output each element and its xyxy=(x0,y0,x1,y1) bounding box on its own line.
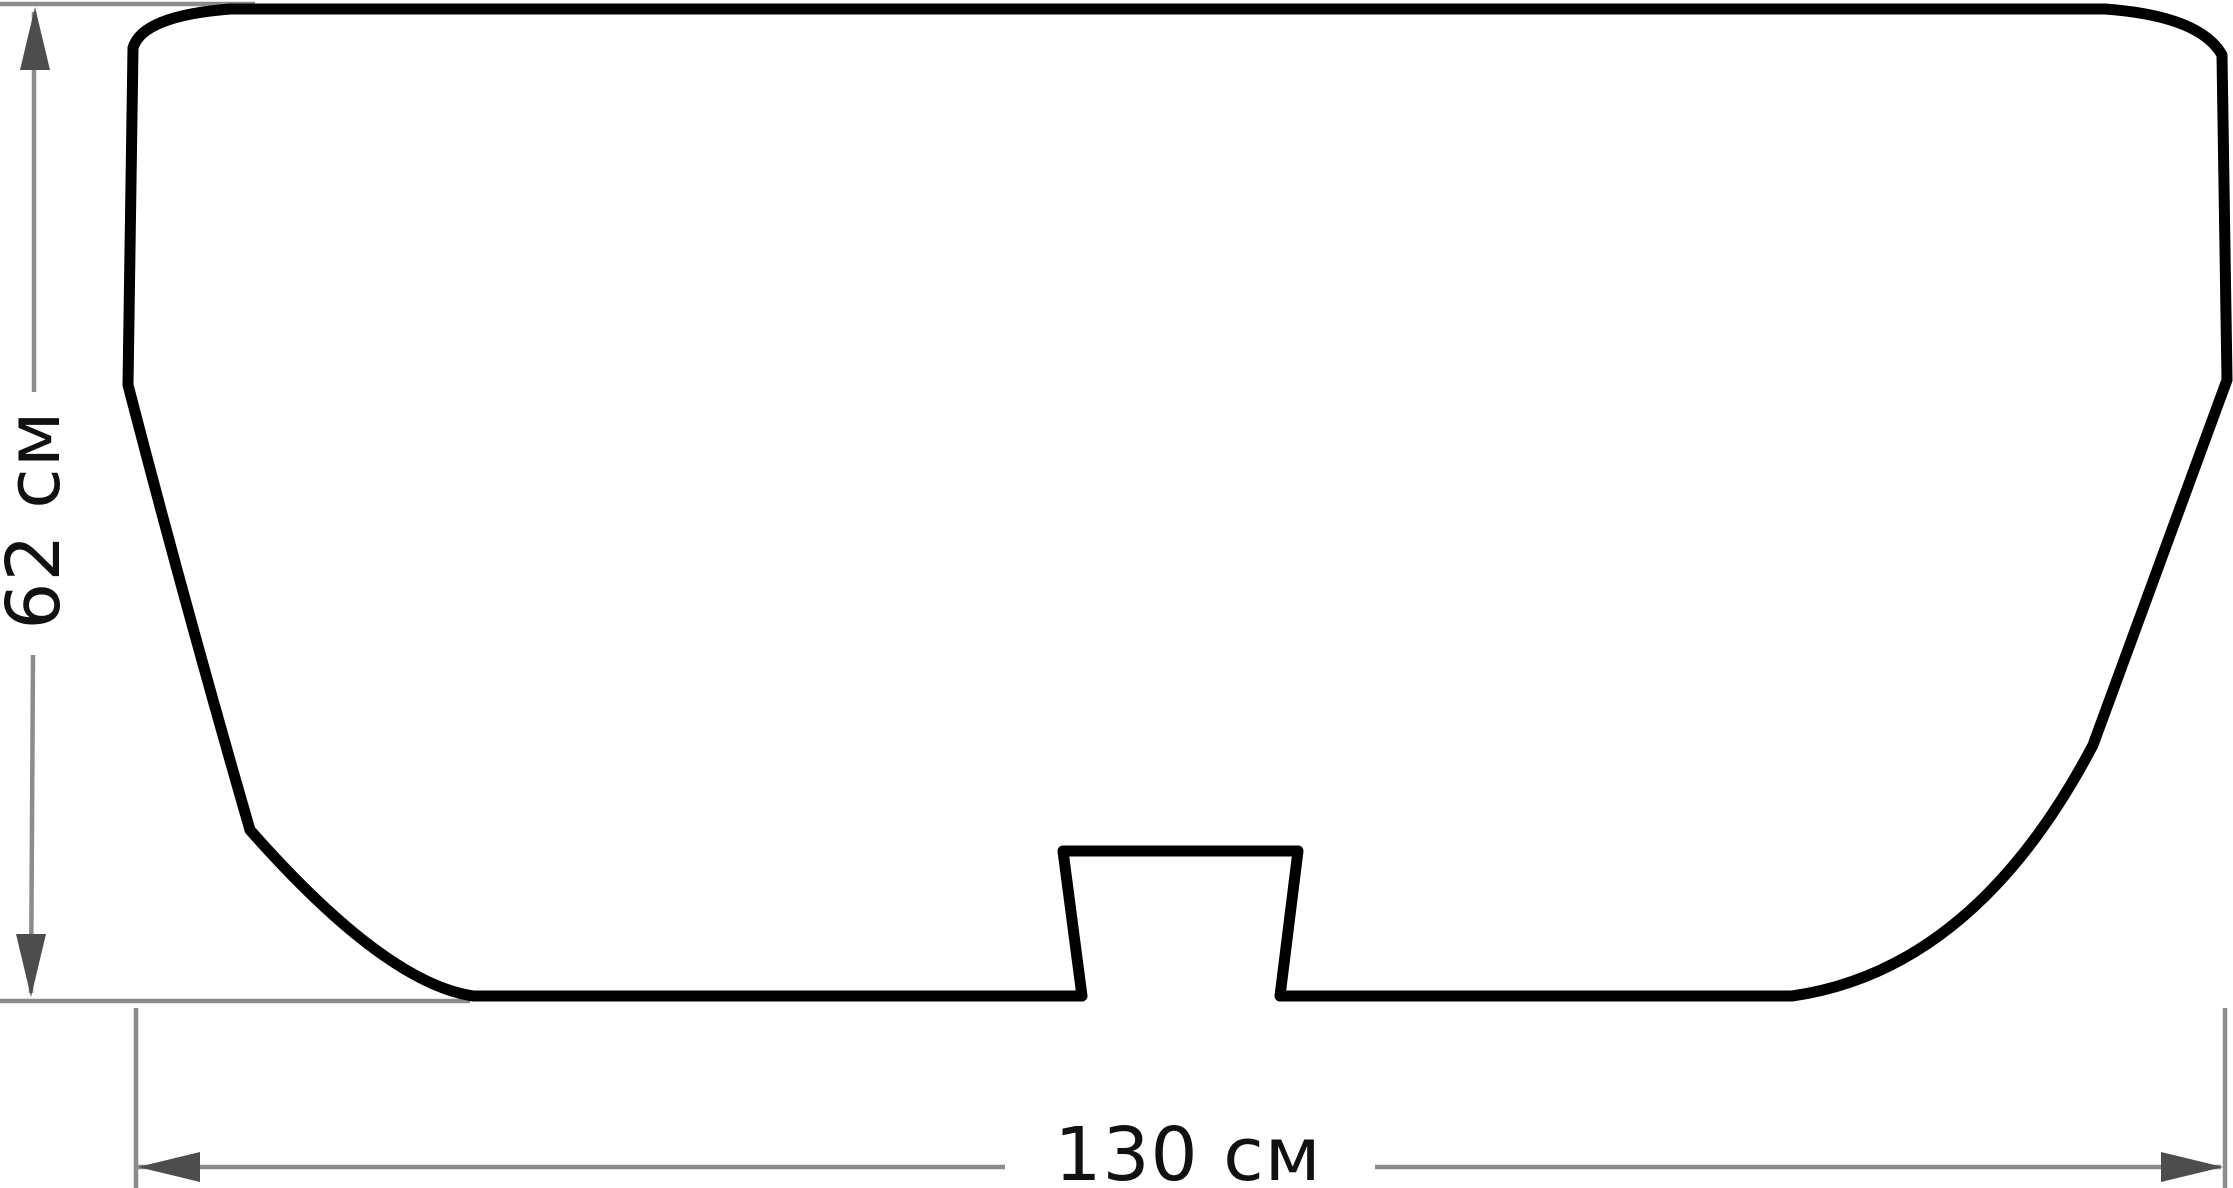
dimension-drawing-page: 62 см 130 см xyxy=(0,0,2233,1188)
width-dimension-label: 130 см xyxy=(1054,1112,1321,1188)
height-dimension-label: 62 см xyxy=(0,410,77,629)
dimension-drawing: 62 см 130 см xyxy=(0,0,2233,1188)
canvas-background xyxy=(0,0,2233,1188)
